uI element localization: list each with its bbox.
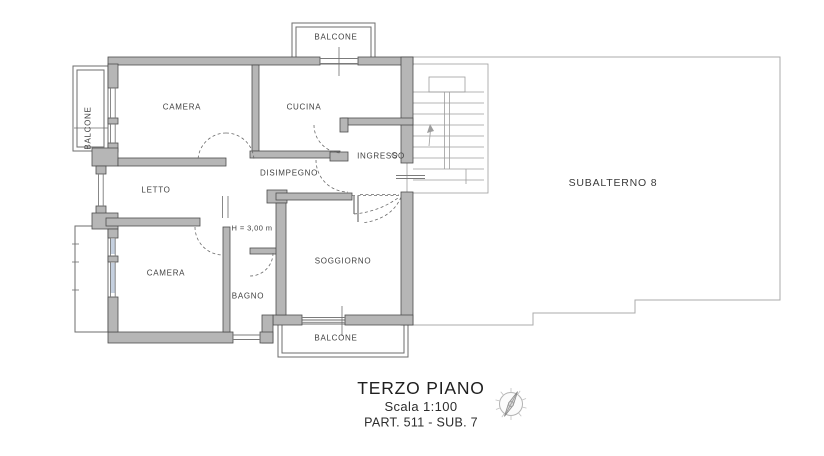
room-label-camera-top: CAMERA xyxy=(163,103,201,112)
label-subalterno: SUBALTERNO 8 xyxy=(569,177,658,189)
subalterno-boundary xyxy=(413,57,780,325)
room-label-camera-bottom: CAMERA xyxy=(147,269,185,278)
balcony-label-bottom: BALCONE xyxy=(314,334,357,343)
title-cadastral: PART. 511 - SUB. 7 xyxy=(364,416,478,430)
floor-plan-svg: CAMERA CUCINA INGRESSO DISIMPEGNO LETTO … xyxy=(0,0,824,456)
room-label-soggiorno: SOGGIORNO xyxy=(315,257,372,266)
room-labels: CAMERA CUCINA INGRESSO DISIMPEGNO LETTO … xyxy=(84,33,658,343)
room-label-letto: LETTO xyxy=(141,186,170,195)
balconies xyxy=(72,23,408,357)
balcony-label-top: BALCONE xyxy=(314,33,357,42)
room-label-cucina: CUCINA xyxy=(287,103,322,112)
note-ceiling-height: H = 3,00 m xyxy=(232,224,273,233)
balcony-label-left: BALCONE xyxy=(84,106,93,149)
title-scale: Scala 1:100 xyxy=(384,399,457,414)
stairwell xyxy=(407,64,488,193)
room-label-ingresso: INGRESSO xyxy=(357,152,405,161)
compass-rose-icon xyxy=(496,388,527,420)
room-label-disimpegno: DISIMPEGNO xyxy=(260,169,318,178)
title-block: TERZO PIANO Scala 1:100 PART. 511 - SUB.… xyxy=(357,378,484,430)
floor-plan-page: CAMERA CUCINA INGRESSO DISIMPEGNO LETTO … xyxy=(0,0,824,456)
title-floor: TERZO PIANO xyxy=(357,378,484,398)
room-label-bagno: BAGNO xyxy=(232,292,264,301)
